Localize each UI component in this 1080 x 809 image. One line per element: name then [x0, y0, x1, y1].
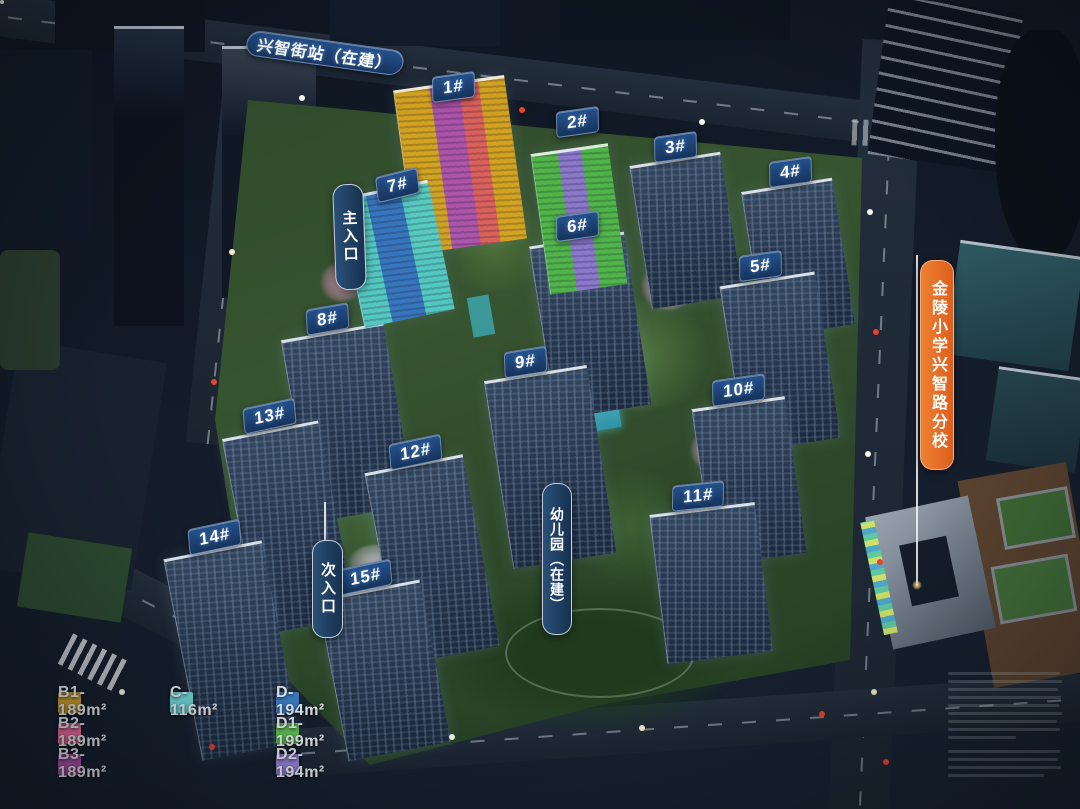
building-sign-3-label: 3#	[665, 135, 686, 158]
disclaimer-fine-print	[948, 672, 1066, 784]
kindergarten-sign-label: 幼儿园（在建）	[547, 507, 567, 612]
disclaimer-line	[948, 696, 1061, 699]
school-sign-label: 金陵小学兴智路分校	[925, 280, 949, 451]
building-sign-6-label: 6#	[567, 214, 588, 237]
building-sign-1-label: 1#	[443, 75, 464, 98]
kindergarten-sign: 幼儿园（在建）	[542, 483, 572, 635]
school-leader-line	[916, 255, 918, 585]
teal-building-right-2	[986, 366, 1080, 473]
disclaimer-line	[948, 712, 1062, 715]
disclaimer-line	[948, 704, 1059, 707]
disclaimer-line	[948, 672, 1060, 675]
building-sign-7-label: 7#	[386, 172, 409, 197]
lower-left-green-roof	[17, 532, 132, 623]
school-leader-glow	[912, 580, 922, 590]
city-block-top-center	[330, 0, 500, 46]
school-sign: 金陵小学兴智路分校	[920, 260, 954, 470]
building-sign-12-label: 12#	[399, 439, 431, 466]
building-sign-4-label: 4#	[780, 160, 801, 183]
main-entrance-sign-label: 主入口	[338, 210, 361, 265]
disclaimer-line	[948, 680, 1062, 683]
disclaimer-line	[948, 728, 1060, 731]
disclaimer-line	[948, 720, 1057, 723]
disclaimer-line	[948, 750, 1060, 753]
tall-tower-left-1	[114, 26, 184, 326]
tree-mass-top-right	[995, 30, 1080, 260]
building-sign-10-label: 10#	[723, 378, 754, 403]
building-sign-8-label: 8#	[317, 307, 339, 331]
disclaimer-line	[948, 766, 1061, 769]
left-park-patch	[0, 250, 60, 370]
secondary-entrance-sign-label: 次入口	[317, 562, 338, 616]
disclaimer-line	[948, 774, 1044, 777]
teal-building-right-1	[945, 240, 1080, 371]
main-entrance-sign: 主入口	[332, 183, 367, 290]
building-sign-13-label: 13#	[253, 403, 285, 430]
building-sign-11-label: 11#	[683, 484, 714, 507]
secondary-entrance-leader-line	[324, 502, 326, 542]
disclaimer-line	[948, 758, 1058, 761]
legend: B1-189m² B2-189m² B3-189m² C-116m² D-194…	[58, 700, 388, 800]
aerial-masterplan-render: 1# 2# 3# 4# 7# 6# 5# 8# 9# 10# 13# 12# 1…	[0, 0, 1080, 809]
legend-label-b3: B3-189m²	[58, 746, 107, 782]
legend-label-c: C-116m²	[170, 684, 218, 720]
building-sign-2-label: 2#	[567, 110, 588, 133]
building-sign-14-label: 14#	[198, 524, 230, 551]
building-sign-5-label: 5#	[750, 254, 771, 277]
disclaimer-line	[948, 688, 1058, 691]
city-block-top-right	[560, 0, 790, 40]
secondary-entrance-sign: 次入口	[312, 540, 343, 638]
far-left-building	[0, 50, 92, 240]
tower-11	[649, 502, 772, 664]
legend-label-d2: D2-194m²	[276, 746, 325, 782]
disclaimer-line	[948, 736, 1016, 739]
building-sign-9-label: 9#	[515, 350, 536, 373]
building-sign-11: 11#	[672, 480, 725, 512]
building-sign-15-label: 15#	[349, 564, 381, 591]
